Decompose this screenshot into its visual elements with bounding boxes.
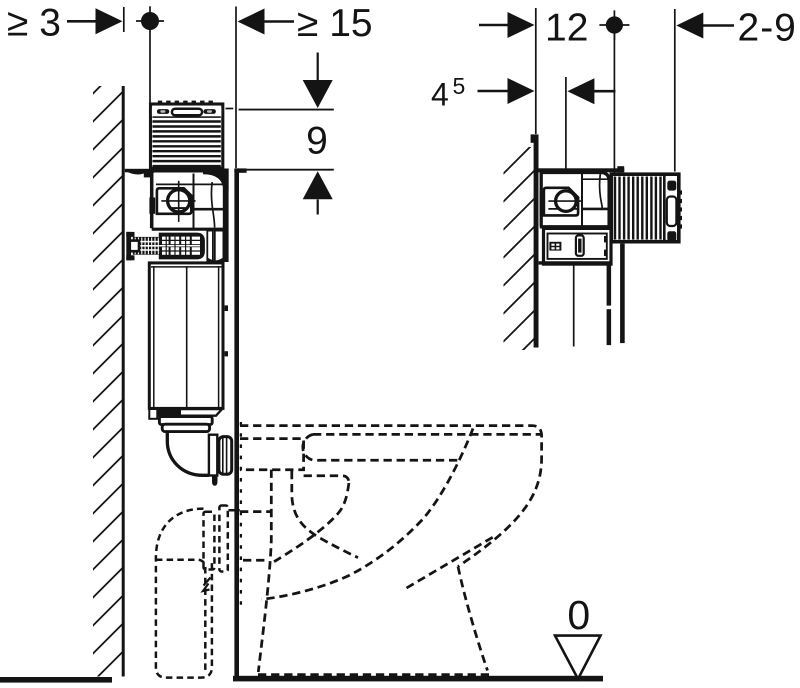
svg-text:12: 12 xyxy=(545,7,588,50)
svg-text:4: 4 xyxy=(431,76,449,112)
svg-text:2-9: 2-9 xyxy=(738,6,797,49)
svg-text:9: 9 xyxy=(306,120,328,163)
svg-text:≥ 15: ≥ 15 xyxy=(297,2,373,45)
svg-text:≥ 3: ≥ 3 xyxy=(7,2,61,45)
svg-text:5: 5 xyxy=(453,73,466,99)
svg-text:0: 0 xyxy=(567,592,590,638)
